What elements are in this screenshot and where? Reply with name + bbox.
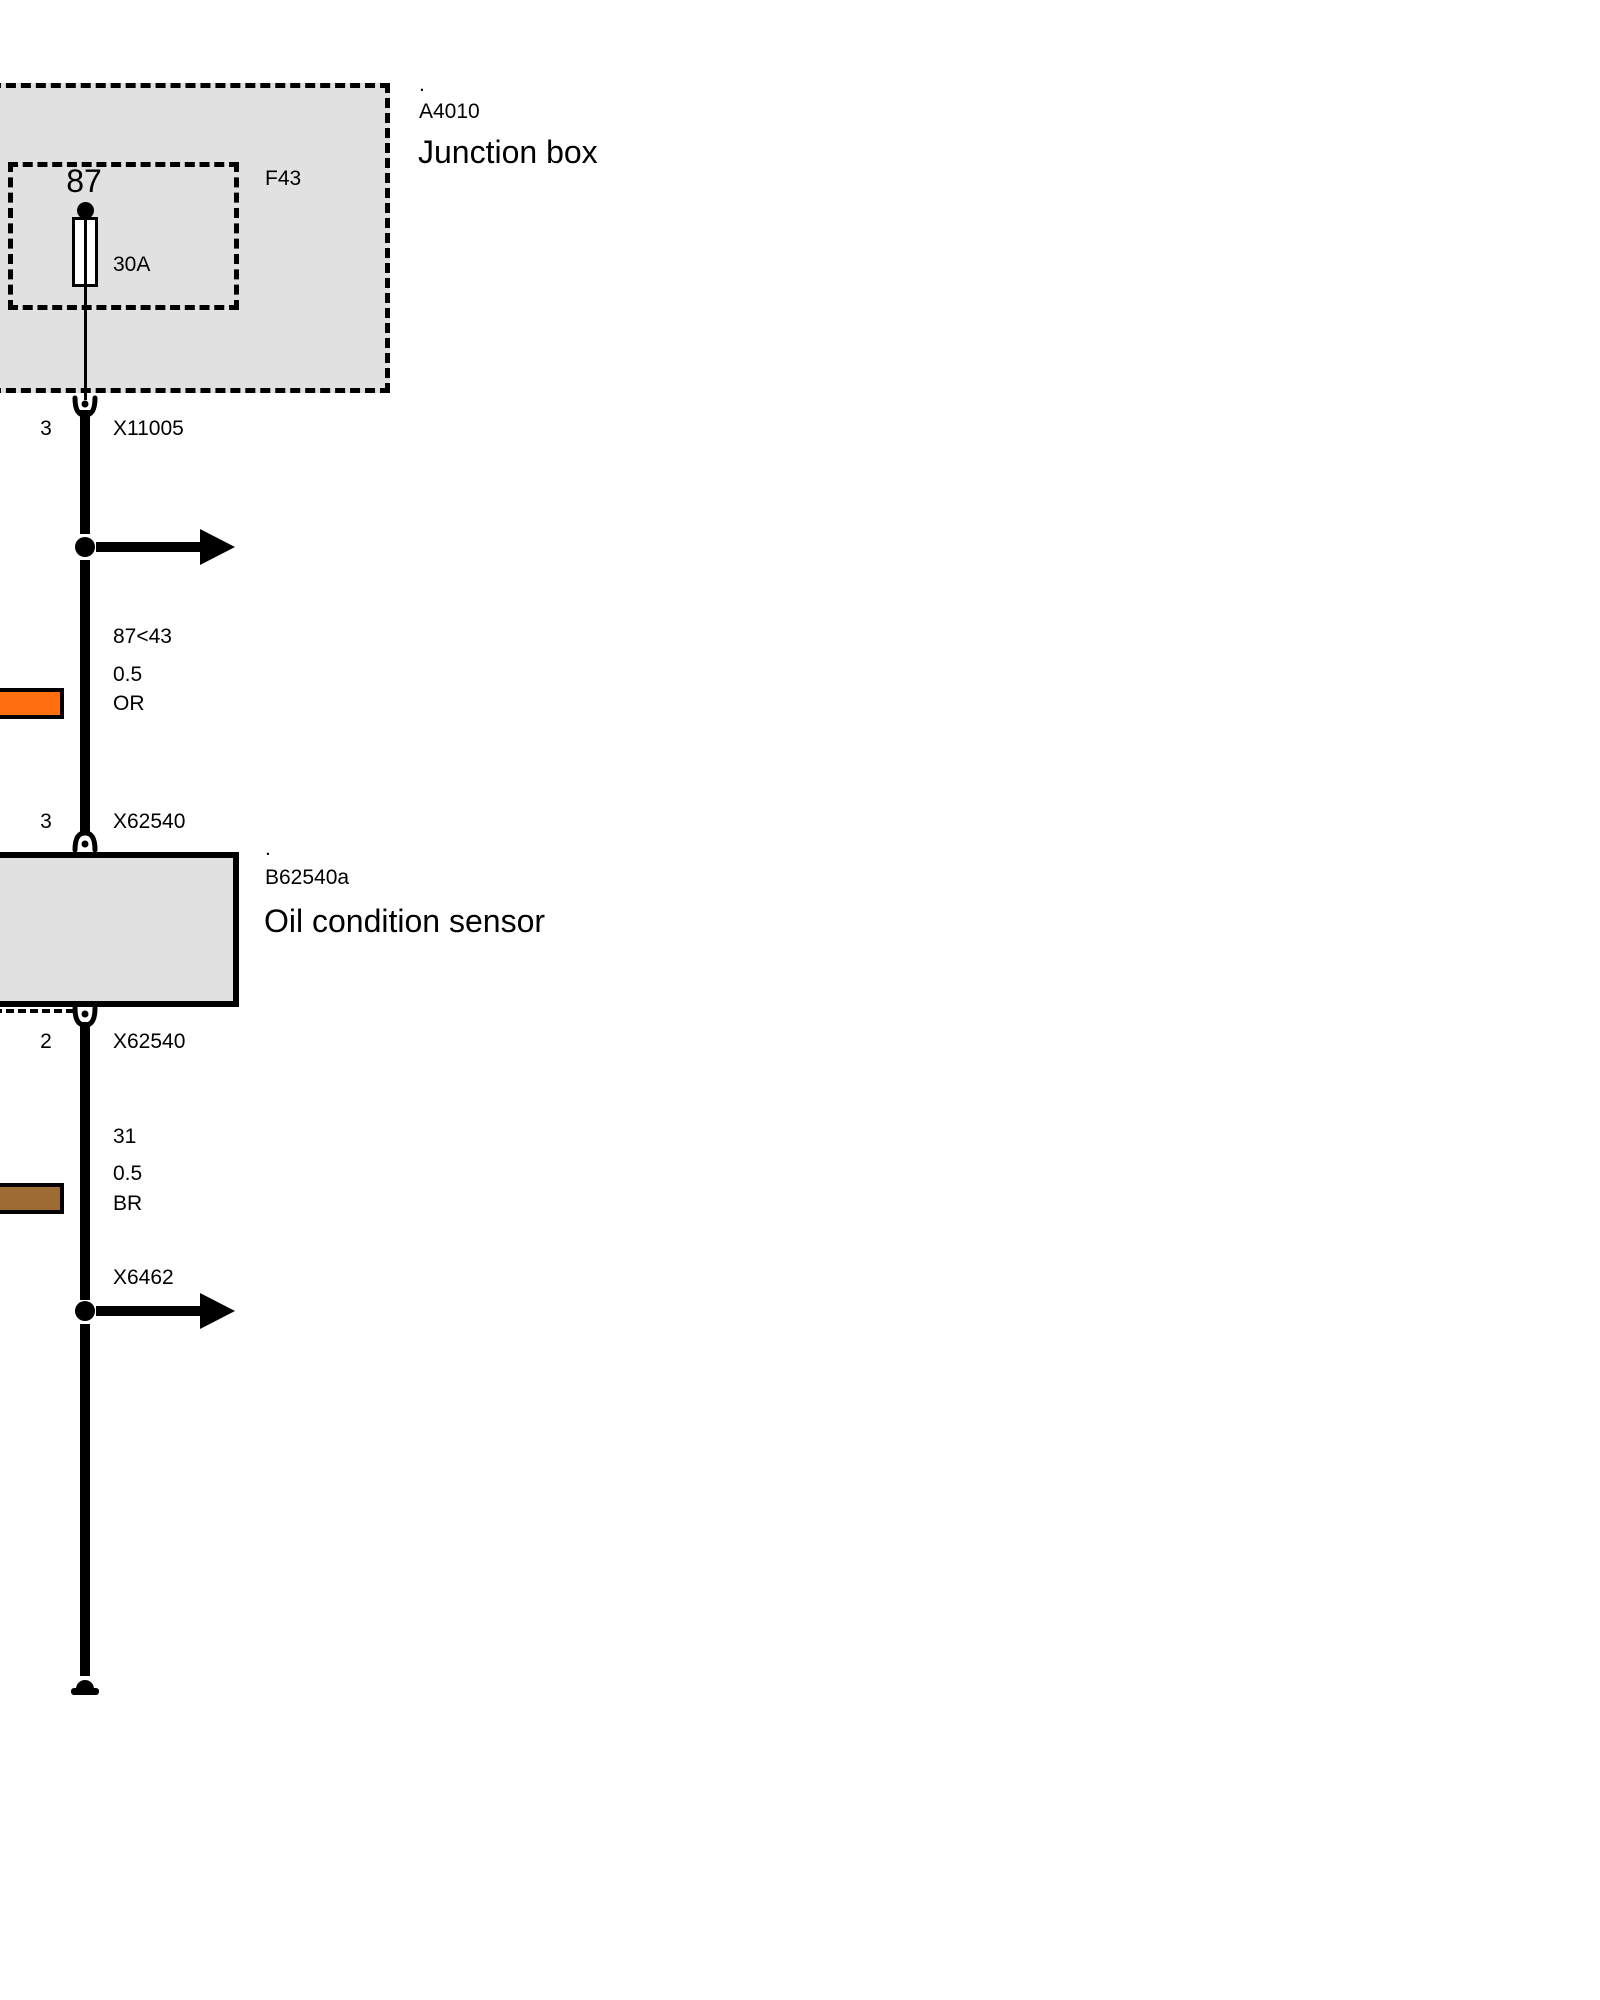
wire-color-swatch-brown	[0, 1183, 64, 1214]
branch-arrow-icon[interactable]	[96, 527, 236, 567]
wire-cross-section-label: 0.5	[113, 664, 142, 685]
wire-color-code-label: OR	[113, 693, 145, 714]
sensor-marker-dot: .	[265, 838, 271, 859]
junction-box-title: Junction box	[418, 136, 598, 168]
sensor-box-outline	[0, 852, 239, 1007]
connector-pin-label: 3	[28, 811, 64, 832]
wire-cross-section-label: 0.5	[113, 1163, 142, 1184]
connector-name-label: X62540	[113, 1031, 185, 1052]
supply-wire-segment	[80, 560, 90, 833]
sensor-title: Oil condition sensor	[264, 905, 545, 937]
fuse-box-outline	[8, 162, 239, 310]
wire-color-code-label: BR	[113, 1193, 142, 1214]
fuse-terminal-dot	[77, 202, 94, 219]
fuse-name-label: F43	[265, 168, 301, 189]
connector-name-label: X6462	[113, 1267, 174, 1288]
ground-wire-segment	[80, 1022, 90, 1300]
fuse-rating-label: 30A	[113, 254, 150, 275]
wire-junction-dot	[75, 1301, 95, 1321]
wire-circuit-label: 31	[113, 1126, 136, 1147]
sensor-code: B62540a	[265, 867, 349, 888]
connector-socket-icon-x62540-in	[70, 829, 100, 853]
fuse-internal-wire	[84, 210, 87, 400]
supply-wire-segment	[80, 410, 90, 534]
wire-circuit-label: 87<43	[113, 626, 172, 647]
junction-box-code: A4010	[419, 101, 480, 122]
wire-color-swatch-orange	[0, 688, 64, 719]
wire-junction-dot	[75, 537, 95, 557]
ground-icon	[65, 1677, 105, 1699]
connector-pin-label: 3	[28, 418, 64, 439]
connector-name-label: X62540	[113, 811, 185, 832]
connector-name-label: X11005	[113, 418, 184, 439]
fuse-terminal-label: 87	[62, 165, 106, 197]
junction-box-marker-dot: .	[419, 74, 425, 95]
boundary-dash-line	[0, 1009, 74, 1013]
wiring-diagram-page: 87 30A F43 . A4010 Junction box 3 X11005…	[0, 0, 1600, 2000]
ground-wire-segment	[80, 1324, 90, 1676]
connector-pin-label: 2	[28, 1031, 64, 1052]
branch-arrow-icon[interactable]	[96, 1291, 236, 1331]
